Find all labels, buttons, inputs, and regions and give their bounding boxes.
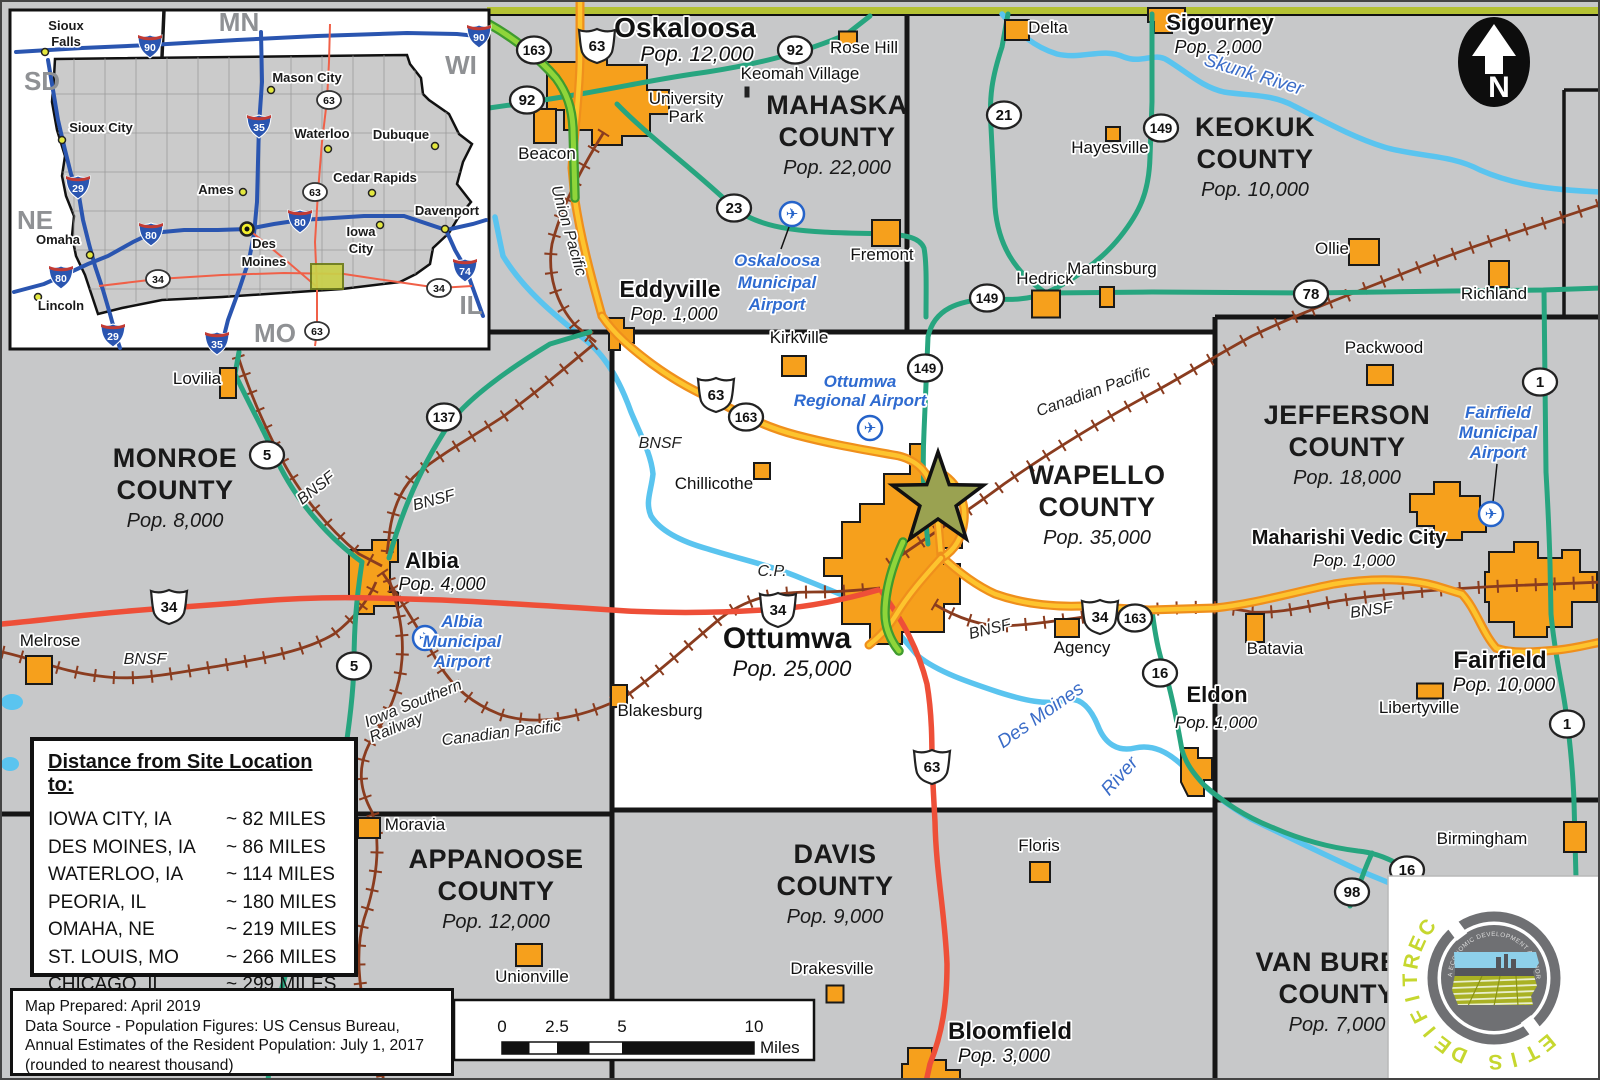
state-route-number: 163	[1124, 611, 1147, 626]
inset-interstate-number: 35	[211, 339, 223, 351]
railroad-label: BNSF	[639, 435, 683, 452]
town-marker	[1246, 614, 1264, 642]
inset-us-route-number: 63	[309, 187, 321, 199]
town-label: Fremont	[850, 245, 914, 264]
county-label: COUNTY	[1289, 432, 1406, 462]
town-pop-label: Pop. 10,000	[1453, 675, 1556, 696]
inset-state-label: WI	[445, 50, 477, 80]
state-route-number: 5	[350, 658, 358, 675]
town-marker	[516, 944, 542, 966]
town-label: Packwood	[1345, 338, 1423, 357]
county-pop-label: Pop. 10,000	[1201, 179, 1309, 201]
state-route-number: 78	[1303, 286, 1320, 303]
us-route-number: 34	[1092, 609, 1109, 626]
inset-city-dot	[240, 189, 247, 196]
scale-tick-label: 5	[617, 1017, 626, 1036]
county-pop-label: Pop. 12,000	[442, 911, 550, 933]
town-label: Moravia	[385, 815, 446, 834]
county-label: COUNTY	[438, 876, 555, 906]
distance-row: OMAHA, NE~ 219 MILES	[48, 916, 340, 944]
town-marker	[358, 818, 380, 838]
inset-city-label: Mason City	[272, 70, 342, 85]
town-marker	[1032, 291, 1060, 318]
town-marker	[1564, 822, 1586, 852]
distance-city: PEORIA, IL	[48, 889, 226, 917]
distance-miles: ~ 180 MILES	[226, 889, 336, 917]
county-pop-label: Pop. 18,000	[1293, 467, 1401, 489]
town-label: Ollie	[1315, 239, 1349, 258]
logo-iowa-graphic	[1450, 952, 1542, 1006]
inset-interstate-number: 80	[55, 273, 67, 285]
north-arrow: N	[1458, 17, 1530, 107]
county-label: COUNTY	[1039, 492, 1156, 522]
inset-state-label: MN	[219, 7, 259, 37]
distance-row: WATERLOO, IA~ 114 MILES	[48, 861, 340, 889]
town-marker	[220, 368, 236, 398]
scale-bar-segment	[557, 1042, 590, 1054]
town-label: Libertyville	[1379, 698, 1459, 717]
town-label: Fairfield	[1453, 647, 1546, 674]
town-label: Chillicothe	[675, 474, 753, 493]
footer-line: Data Source - Population Figures: US Cen…	[25, 1017, 439, 1037]
distance-city: IOWA CITY, IA	[48, 806, 226, 834]
airport-label: Airport	[433, 652, 492, 671]
county-label: DAVIS	[793, 839, 876, 869]
county-label: COUNTY	[1197, 144, 1314, 174]
inset-interstate-number: 90	[144, 42, 156, 54]
town-marker	[1367, 365, 1393, 385]
inset-state-line	[162, 10, 164, 57]
distance-row: PEORIA, IL~ 180 MILES	[48, 889, 340, 917]
scale-bar-segment	[502, 1042, 530, 1054]
inset-city-label: Iowa	[347, 224, 377, 239]
inset-state-label: MO	[254, 318, 296, 348]
county-site-map: MAHASKACOUNTYPop. 22,000KEOKUKCOUNTYPop.…	[0, 0, 1600, 1080]
town-label: Oskaloosa	[614, 12, 756, 43]
inset-city-label: Des	[252, 236, 276, 251]
town-marker	[872, 220, 900, 246]
inset-city-label: Waterloo	[294, 126, 349, 141]
county-label: COUNTY	[1279, 979, 1396, 1009]
inset-interstate-number: 90	[473, 32, 485, 44]
county-label: WAPELLO	[1029, 460, 1166, 490]
state-route-number: 5	[263, 447, 271, 464]
state-route-number: 149	[1150, 121, 1173, 136]
town-label: Park	[669, 107, 704, 126]
inset-city-label: Dubuque	[373, 127, 429, 142]
railroad-label: BNSF	[124, 651, 168, 668]
town-label: Eldon	[1186, 682, 1247, 707]
town-pop-label: Pop. 3,000	[958, 1046, 1050, 1067]
logo-building	[1496, 957, 1501, 969]
inset-state-label: NE	[17, 205, 53, 235]
inset-city-dot	[42, 49, 49, 56]
town-label: Richland	[1461, 284, 1527, 303]
distance-panel: Distance from Site Location to: IOWA CIT…	[30, 737, 358, 977]
town-pop-label: Pop. 1,000	[630, 304, 717, 324]
town-label: Melrose	[20, 631, 80, 650]
airport-label: Municipal	[1459, 423, 1539, 442]
county-label: MONROE	[113, 443, 238, 473]
inset-city-dot	[268, 87, 275, 94]
distance-city: OMAHA, NE	[48, 916, 226, 944]
distance-miles: ~ 219 MILES	[226, 916, 336, 944]
airport-label: Oskaloosa	[734, 251, 820, 270]
airport-label: Ottumwa	[824, 372, 897, 391]
town-label: University	[649, 89, 724, 108]
town-label: Beacon	[518, 144, 576, 163]
distance-city: WATERLOO, IA	[48, 861, 226, 889]
state-route-number: 23	[726, 200, 743, 217]
town-pop-label: Pop. 12,000	[640, 43, 754, 66]
us-route-number: 34	[770, 602, 787, 619]
inset-interstate-number: 80	[145, 230, 157, 242]
inset-city-label: Ames	[198, 182, 233, 197]
scale-bar: 02.5510Miles	[454, 1000, 814, 1060]
town-marker	[1417, 684, 1443, 699]
town-label: Ottumwa	[723, 622, 852, 655]
town-marker	[534, 109, 556, 143]
scale-tick-label: 0	[497, 1017, 506, 1036]
scale-tick-label: 10	[745, 1017, 764, 1036]
inset-capital-dot	[245, 227, 250, 232]
inset-city-dot	[432, 143, 439, 150]
county-pop-label: Pop. 9,000	[787, 906, 884, 928]
inset-us-route-number: 34	[433, 283, 445, 295]
town-marker	[745, 87, 750, 98]
inset-interstate-number: 29	[107, 331, 119, 343]
us-route-number: 34	[161, 599, 178, 616]
town-label: Rose Hill	[830, 38, 898, 57]
inset-city-dot	[325, 146, 332, 153]
logo-arc-letter: S	[1488, 1050, 1502, 1073]
us-route-number: 63	[924, 759, 941, 776]
town-label: Batavia	[1247, 639, 1304, 658]
inset-interstate-number: 35	[253, 122, 265, 134]
footer-line: (rounded to nearest thousand)	[25, 1056, 439, 1076]
logo-skyline	[1450, 968, 1542, 977]
airport-label: Municipal	[738, 273, 818, 292]
distance-row: IOWA CITY, IA~ 82 MILES	[48, 806, 340, 834]
town-label: Sigourney	[1166, 10, 1274, 35]
inset-city-label: Cedar Rapids	[333, 170, 417, 185]
town-marker	[754, 463, 770, 479]
town-marker	[26, 656, 52, 684]
inset-interstate-number: 80	[294, 217, 306, 229]
distance-city: ST. LOUIS, MO	[48, 944, 226, 972]
state-route-number: 1	[1563, 716, 1571, 733]
logo-arc-letter: T	[1399, 973, 1422, 987]
airport-label: Airport	[748, 295, 807, 314]
inset-city-label: Omaha	[36, 232, 81, 247]
distance-row: ST. LOUIS, MO~ 266 MILES	[48, 944, 340, 972]
state-route-number: 149	[914, 361, 937, 376]
pond	[2, 694, 23, 710]
inset-interstate-number: 29	[72, 183, 84, 195]
town-marker	[1349, 239, 1379, 265]
town-label: Hayesville	[1071, 138, 1148, 157]
inset-us-route-number: 63	[311, 326, 323, 338]
town-marker	[1100, 287, 1114, 307]
distance-miles: ~ 86 MILES	[226, 834, 326, 862]
inset-city-label: Moines	[242, 254, 287, 269]
us-route-number: 63	[708, 387, 725, 404]
railroad-label: C.P.	[757, 563, 786, 580]
town-marker	[1005, 20, 1029, 40]
state-route-number: 1	[1536, 374, 1544, 391]
map-source-note: Map Prepared: April 2019 Data Source - P…	[10, 988, 454, 1076]
inset-city-label: Falls	[51, 34, 81, 49]
state-route-number: 149	[976, 291, 999, 306]
county-pop-label: Pop. 35,000	[1043, 527, 1151, 549]
airport-label: Regional Airport	[794, 391, 928, 410]
county-label: MAHASKA	[766, 90, 908, 120]
state-route-number: 92	[519, 92, 536, 109]
town-pop-label: Pop. 1,000	[1313, 551, 1396, 570]
inset-city-label: Sioux City	[69, 120, 133, 135]
town-pop-label: Pop. 4,000	[398, 574, 485, 594]
inset-city-label: Sioux	[48, 18, 84, 33]
footer-line: Annual Estimates of the Resident Populat…	[25, 1036, 439, 1056]
inset-site-area-highlight	[311, 264, 343, 289]
airplane-icon: ✈	[864, 420, 877, 437]
state-route-number: 21	[996, 107, 1013, 124]
inset-city-label: Lincoln	[38, 298, 84, 313]
distance-panel-title: Distance from Site Location to:	[48, 751, 340, 797]
county-pop-label: Pop. 8,000	[127, 510, 224, 532]
airport-label: Municipal	[423, 632, 503, 651]
footer-line: Map Prepared: April 2019	[25, 997, 439, 1017]
inset-us-route-number: 63	[323, 95, 335, 107]
town-label: Lovilia	[173, 369, 222, 388]
town-marker	[1030, 862, 1050, 882]
town-label: Eddyville	[620, 276, 721, 302]
town-pop-label: Pop. 1,000	[1175, 713, 1258, 732]
state-route-number: 92	[787, 42, 804, 59]
airport-label: Albia	[440, 612, 483, 631]
inset-city-dot	[377, 222, 384, 229]
state-route-number: 163	[523, 43, 546, 58]
logo-building	[1504, 954, 1508, 969]
airplane-icon: ✈	[1485, 506, 1498, 523]
state-route-number: 137	[433, 410, 456, 425]
scale-bar-segment	[622, 1042, 754, 1054]
county-label: COUNTY	[777, 871, 894, 901]
distance-miles: ~ 114 MILES	[226, 861, 335, 889]
airport-label: Airport	[1469, 443, 1528, 462]
town-label: Albia	[405, 548, 460, 573]
town-label: Bloomfield	[948, 1018, 1072, 1045]
inset-state-label: IL	[459, 290, 482, 320]
inset-city-dot	[442, 226, 449, 233]
scale-tick-label: 2.5	[545, 1017, 569, 1036]
state-route-number: 16	[1152, 665, 1169, 682]
town-label: Drakesville	[790, 959, 873, 978]
airport-label: Fairfield	[1465, 403, 1532, 422]
inset-city-dot	[87, 252, 94, 259]
us-route-number: 63	[589, 38, 606, 55]
airplane-icon: ✈	[786, 206, 799, 223]
town-label: Keomah Village	[741, 64, 860, 83]
town-label: Hedrick	[1016, 269, 1074, 288]
town-marker	[827, 986, 844, 1003]
town-label: Kirkville	[770, 328, 829, 347]
inset-state-label: SD	[24, 66, 60, 96]
town-label: Floris	[1018, 836, 1060, 855]
county-label: COUNTY	[779, 122, 896, 152]
town-label: Birmingham	[1437, 829, 1528, 848]
inset-city-label: Davenport	[415, 203, 480, 218]
north-arrow-label: N	[1488, 71, 1510, 104]
town-label: Maharishi Vedic City	[1252, 527, 1447, 549]
distance-city: DES MOINES, IA	[48, 834, 226, 862]
inset-map: MNWISDNEMOILSiouxFallsMason CitySioux Ci…	[10, 7, 491, 355]
county-label: APPANOOSE	[408, 844, 583, 874]
distance-miles: ~ 266 MILES	[226, 944, 336, 972]
scale-unit-label: Miles	[760, 1038, 800, 1057]
county-label: JEFFERSON	[1264, 400, 1431, 430]
inset-interstate-number: 74	[459, 266, 471, 278]
town-marker	[1055, 619, 1079, 637]
county-pop-label: Pop. 22,000	[783, 157, 891, 179]
inset-us-route-number: 34	[152, 274, 164, 286]
town-pop-label: Pop. 25,000	[733, 656, 852, 681]
town-label: Blakesburg	[617, 701, 702, 720]
town-label: Agency	[1054, 638, 1111, 657]
county-label: COUNTY	[117, 475, 234, 505]
distance-row: DES MOINES, IA~ 86 MILES	[48, 834, 340, 862]
county-label: KEOKUK	[1195, 112, 1315, 142]
distance-miles: ~ 82 MILES	[226, 806, 326, 834]
inset-city-label: City	[349, 241, 374, 256]
state-route-number: 98	[1344, 884, 1361, 901]
town-label: Delta	[1028, 18, 1068, 37]
county-pop-label: Pop. 7,000	[1289, 1014, 1386, 1036]
logo-building	[1511, 959, 1516, 969]
inset-city-dot	[369, 190, 376, 197]
state-route-number: 163	[735, 410, 758, 425]
town-label: Unionville	[495, 967, 569, 986]
town-label: Martinsburg	[1067, 259, 1157, 278]
town-marker	[782, 356, 806, 376]
inset-city-dot	[59, 137, 66, 144]
